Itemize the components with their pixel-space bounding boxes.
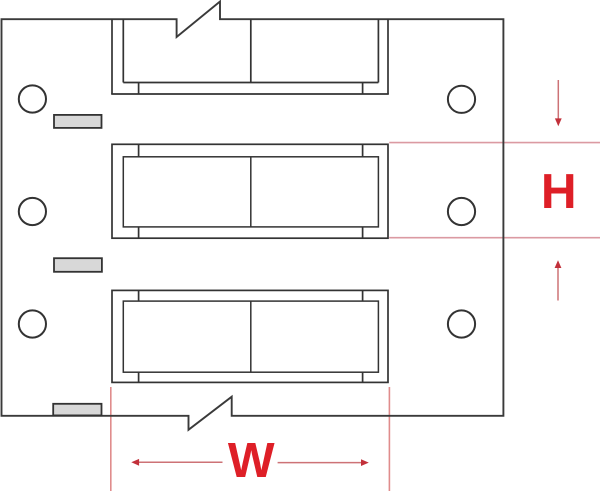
svg-text:W: W: [228, 433, 275, 488]
svg-text:H: H: [541, 164, 577, 219]
